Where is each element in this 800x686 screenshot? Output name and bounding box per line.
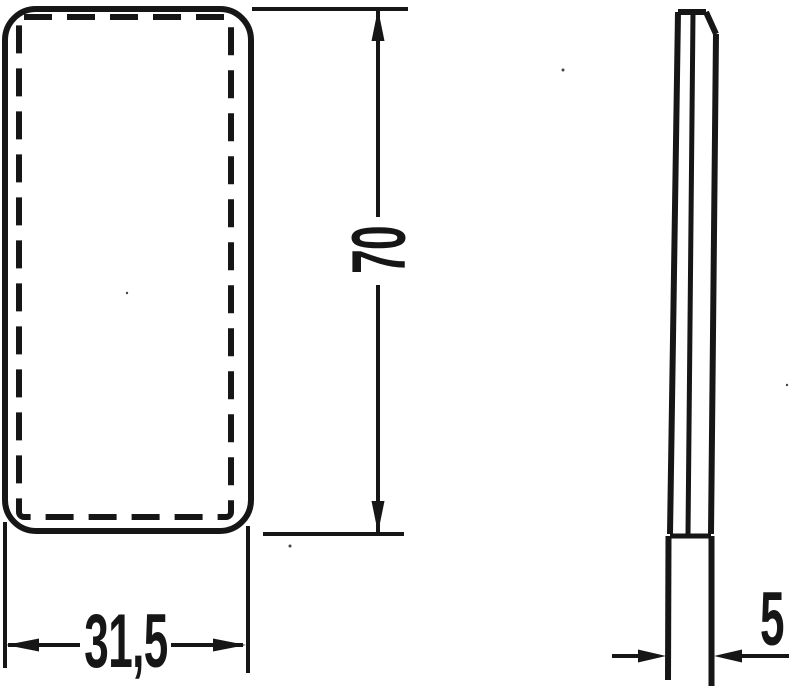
width-dimension: 31,5 (5, 522, 248, 684)
scan-speck (562, 69, 565, 72)
thickness-dimension-label: 5 (760, 578, 784, 662)
arrowhead-inward-left-icon (714, 650, 742, 663)
arrowhead-up-icon (372, 9, 385, 41)
front-view (5, 9, 251, 531)
side-right-edge (711, 34, 716, 534)
scan-speck (289, 545, 292, 548)
thickness-dimension: 5 (612, 578, 789, 663)
thickness-label-group: 5 (760, 578, 784, 662)
height-dimension: 70 (252, 9, 422, 534)
reflector-technical-drawing: 70 31,5 (0, 0, 800, 686)
arrowhead-inward-right-icon (638, 650, 666, 663)
technical-drawing-canvas: 70 31,5 (0, 0, 800, 686)
side-lens-parting-line (688, 12, 693, 534)
height-label-group: 70 (338, 226, 422, 274)
reflector-inner-dashed-outline (19, 17, 231, 517)
width-label-group: 31,5 (84, 600, 167, 684)
side-top-chamfer-edge (706, 12, 716, 34)
stem-left-edge (668, 536, 669, 680)
side-left-edge (670, 12, 678, 534)
arrowhead-down-icon (372, 501, 385, 533)
scan-speck (786, 384, 788, 386)
reflector-outer-outline (5, 9, 251, 531)
side-view (668, 12, 716, 686)
height-dimension-label: 70 (338, 226, 422, 274)
scan-speck (126, 292, 128, 294)
arrowhead-left-icon (6, 639, 39, 652)
arrowhead-right-icon (213, 639, 246, 652)
width-dimension-label: 31,5 (84, 600, 167, 684)
